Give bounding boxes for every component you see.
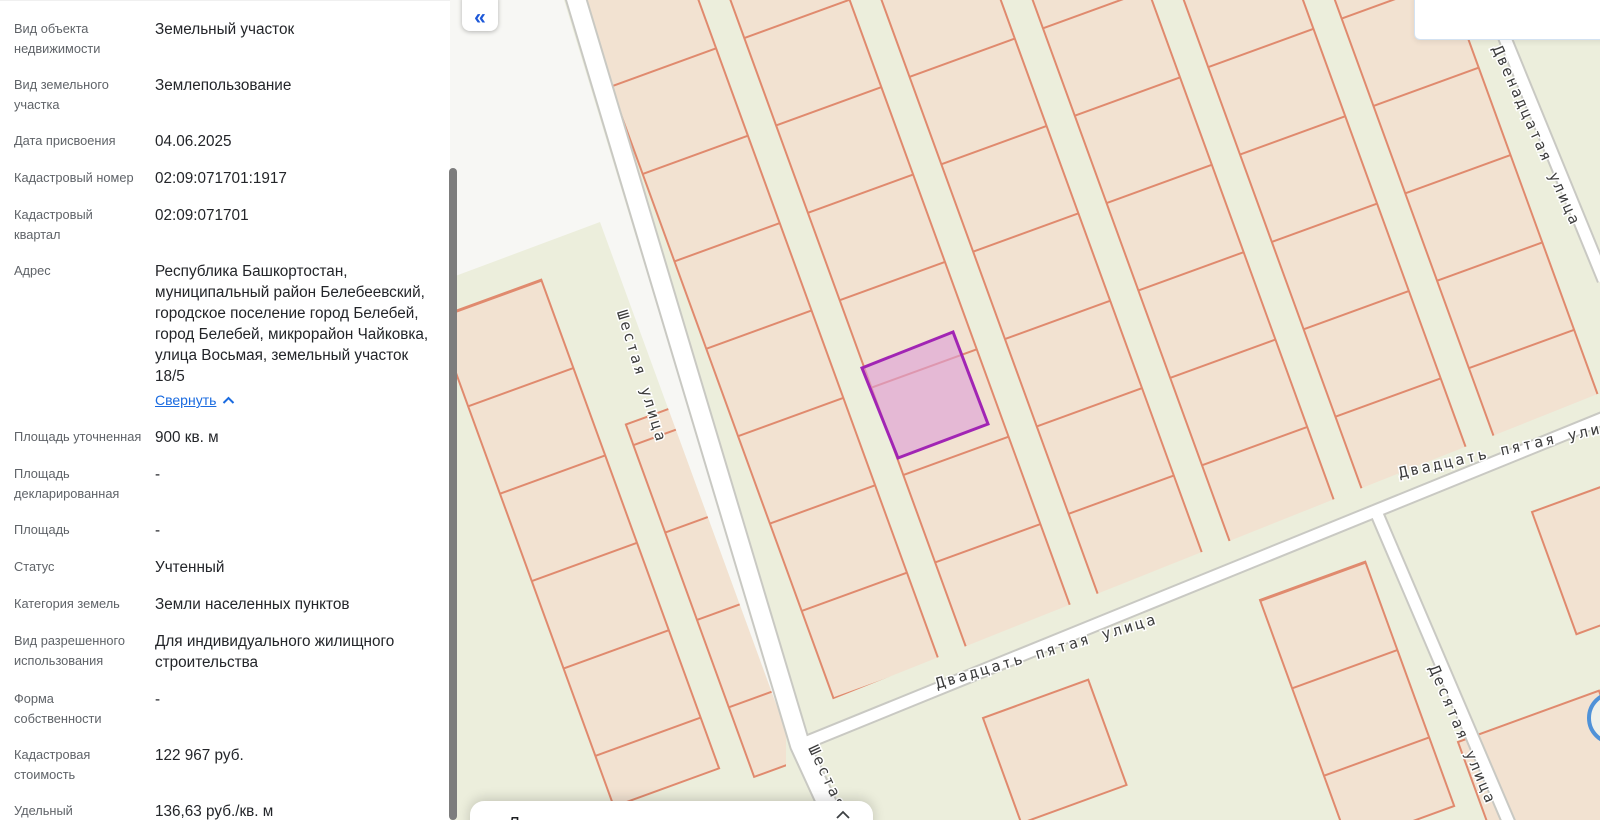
detail-value: Землепользование xyxy=(155,75,430,115)
detail-label: Кадастровый квартал xyxy=(14,205,142,245)
detail-value: 136,63 руб./кв. м xyxy=(155,801,430,820)
collapse-address-link[interactable]: Свернуть xyxy=(155,390,235,411)
detail-value: Земли населенных пунктов xyxy=(155,594,430,615)
detail-value: Для индивидуального жилищного строительс… xyxy=(155,631,430,673)
detail-label: Вид объекта недвижимости xyxy=(14,19,142,59)
detail-label: Дата присвоения xyxy=(14,131,142,152)
detail-value: 900 кв. м xyxy=(155,427,430,448)
detail-row: Статус Учтенный xyxy=(14,557,430,578)
detail-value: Республика Башкортостан, муниципальный р… xyxy=(155,261,430,411)
detail-row: Вид объекта недвижимости Земельный участ… xyxy=(14,19,430,59)
detail-label: Вид земельного участка xyxy=(14,75,142,115)
panel-scrollbar[interactable] xyxy=(449,168,457,820)
detail-label: Форма собственности xyxy=(14,689,142,729)
detail-row: Кадастровая стоимость 122 967 руб. xyxy=(14,745,430,785)
collapse-address-label: Свернуть xyxy=(155,390,216,411)
collapse-panel-button[interactable]: « xyxy=(462,0,498,31)
detail-row: Форма собственности - xyxy=(14,689,430,729)
double-chevron-left-icon: « xyxy=(474,5,486,31)
detail-row: Вид земельного участка Землепользование xyxy=(14,75,430,115)
detail-row: Вид разрешенного использования Для индив… xyxy=(14,631,430,673)
detail-value: Учтенный xyxy=(155,557,430,578)
detail-value: - xyxy=(155,520,430,541)
detail-value: 04.06.2025 xyxy=(155,131,430,152)
map-overlay-box xyxy=(1414,0,1600,40)
legend-title: Легенда xyxy=(508,814,576,820)
detail-label: Адрес xyxy=(14,261,142,411)
detail-label: Кадастровая стоимость xyxy=(14,745,142,785)
detail-row: Дата присвоения 04.06.2025 xyxy=(14,131,430,152)
detail-value: 02:09:071701 xyxy=(155,205,430,245)
detail-label: Кадастровый номер xyxy=(14,168,142,189)
detail-row: Кадастровый квартал 02:09:071701 xyxy=(14,205,430,245)
detail-row: Категория земель Земли населенных пункто… xyxy=(14,594,430,615)
detail-label: Вид разрешенного использования xyxy=(14,631,142,673)
details-panel: Вид объекта недвижимости Земельный участ… xyxy=(0,0,450,820)
detail-value: Земельный участок xyxy=(155,19,430,59)
detail-label: Удельный показатель кадастровой стоимост… xyxy=(14,801,142,820)
detail-row: Площадь - xyxy=(14,520,430,541)
detail-row: Площадь уточненная 900 кв. м xyxy=(14,427,430,448)
legend-panel[interactable]: Легенда xyxy=(470,801,873,820)
detail-value: 122 967 руб. xyxy=(155,745,430,785)
detail-label: Площадь декларированная xyxy=(14,464,142,504)
detail-label: Статус xyxy=(14,557,142,578)
chevron-up-icon[interactable] xyxy=(835,807,851,820)
details-list: Вид объекта недвижимости Земельный участ… xyxy=(14,19,430,820)
detail-label: Площадь уточненная xyxy=(14,427,142,448)
detail-value: - xyxy=(155,689,430,729)
detail-row: Кадастровый номер 02:09:071701:1917 xyxy=(14,168,430,189)
detail-label: Площадь xyxy=(14,520,142,541)
detail-label: Категория земель xyxy=(14,594,142,615)
detail-row: Площадь декларированная - xyxy=(14,464,430,504)
detail-value: 02:09:071701:1917 xyxy=(155,168,430,189)
detail-row: Адрес Республика Башкортостан, муниципал… xyxy=(14,261,430,411)
map[interactable]: Шестая улица Шестая улица Двадцать пятая… xyxy=(450,0,1600,820)
detail-value: - xyxy=(155,464,430,504)
app-window: Шестая улица Шестая улица Двадцать пятая… xyxy=(0,0,1600,820)
detail-row: Удельный показатель кадастровой стоимост… xyxy=(14,801,430,820)
chevron-up-icon xyxy=(222,396,235,405)
